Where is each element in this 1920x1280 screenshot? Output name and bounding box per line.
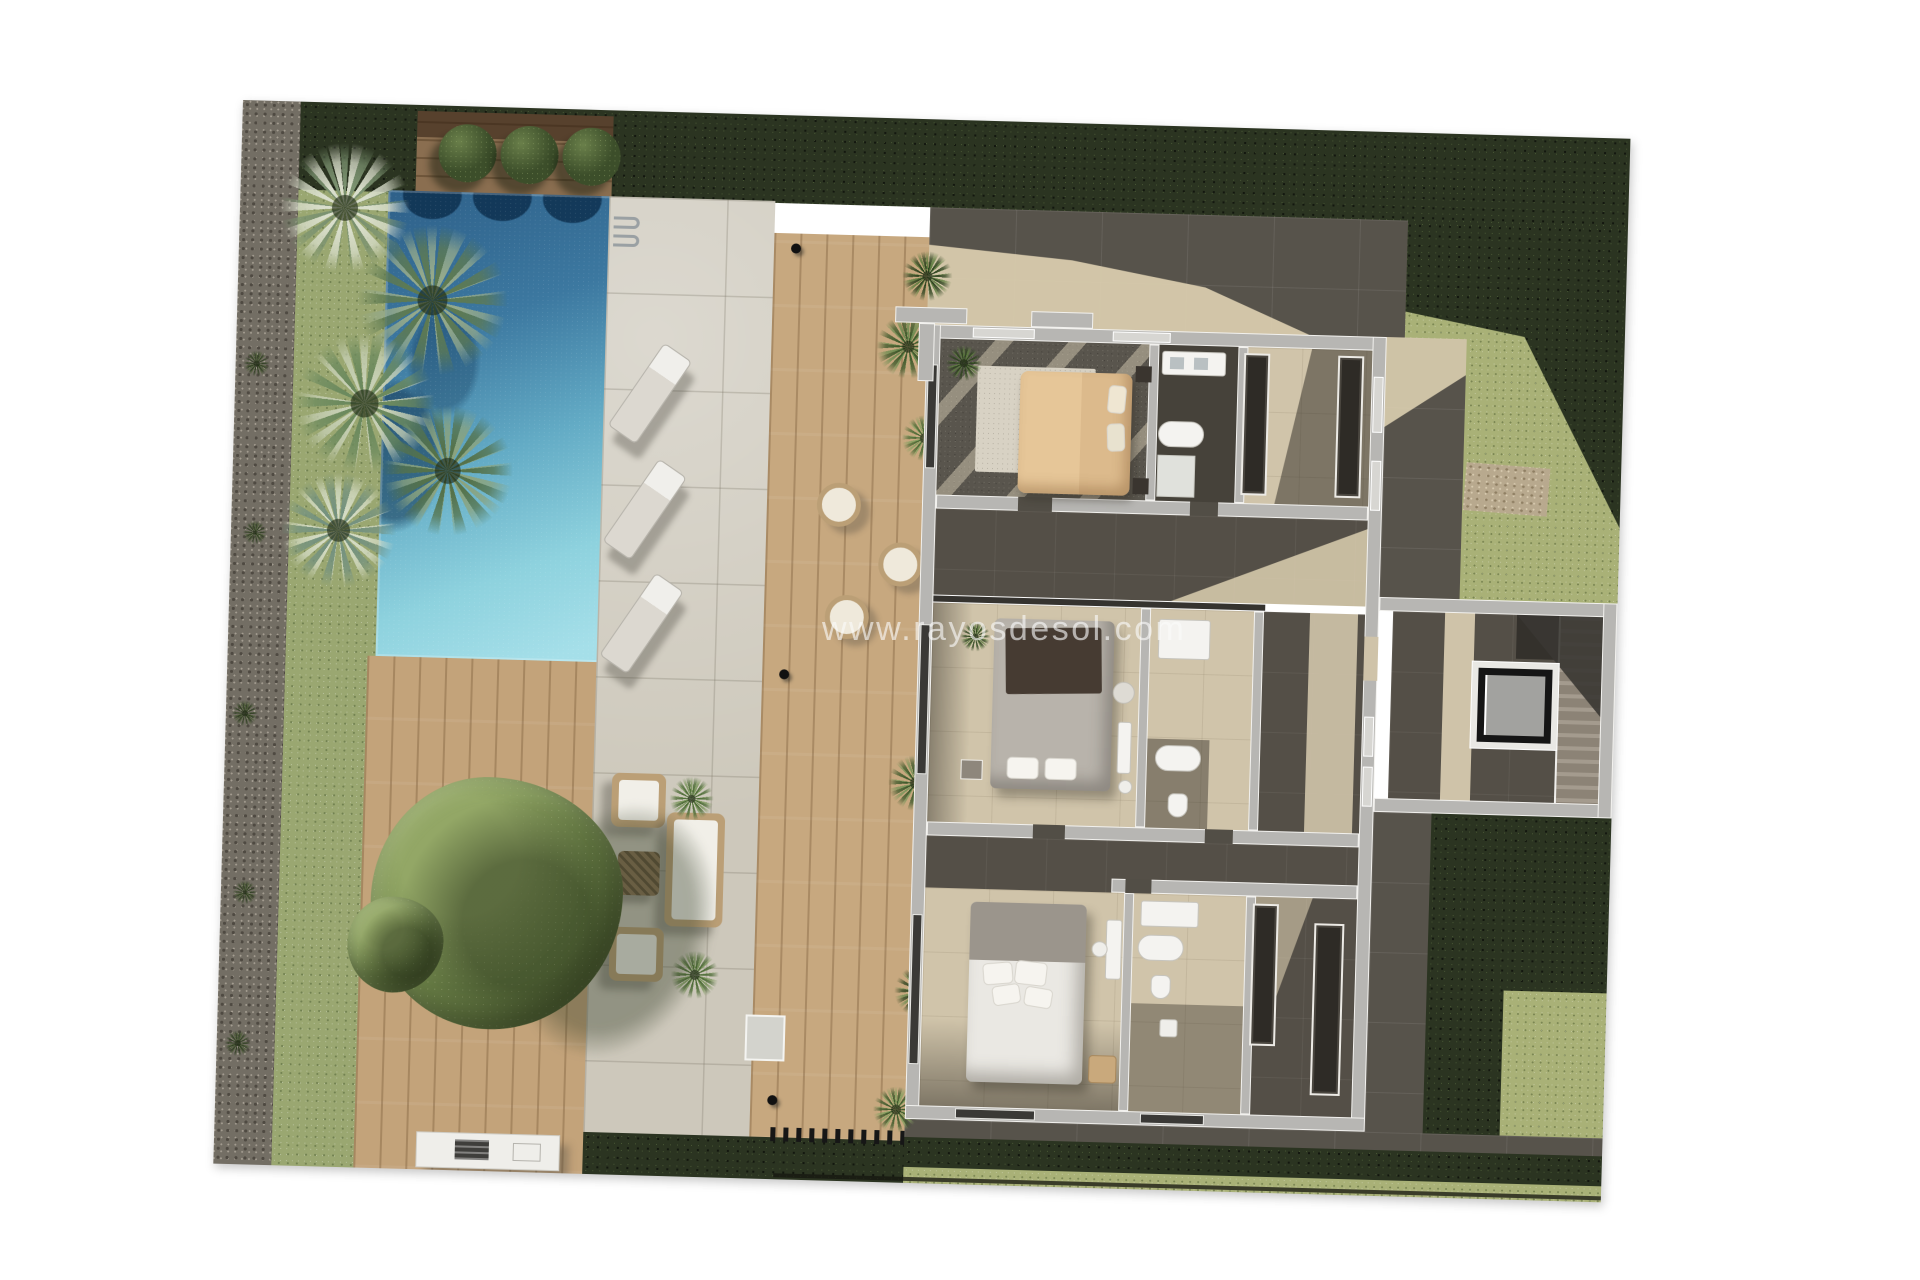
wall-stub-north — [1031, 311, 1093, 329]
bed-pillow — [991, 983, 1022, 1007]
elevator-cab — [1484, 675, 1546, 737]
wall-stub-entry-leg — [917, 323, 935, 381]
staircase-treads — [1554, 616, 1605, 804]
grass-under-patio — [582, 1132, 749, 1179]
terrace-east — [1380, 337, 1467, 599]
bathroom2-toilet — [1167, 793, 1188, 818]
wardrobe — [1334, 356, 1364, 499]
window-north — [973, 327, 1035, 339]
nightstand — [1132, 478, 1148, 494]
corridor-runner — [1304, 613, 1358, 833]
nightstand — [960, 759, 983, 780]
wardrobe — [1249, 904, 1279, 1047]
bathroom3-bathtub — [1137, 934, 1184, 961]
door-opening — [1125, 879, 1151, 894]
pool-ladder-rail — [614, 216, 640, 229]
window-south-glazing — [1140, 1113, 1204, 1125]
door-opening-to-stairwell — [1363, 637, 1378, 681]
outdoor-coffee-table — [617, 851, 660, 896]
nightstand — [1135, 366, 1151, 382]
floor-plan-render — [213, 100, 1630, 1202]
terrace-east-lower — [1365, 812, 1432, 1133]
elevator-frame — [1469, 661, 1559, 751]
door-opening — [1190, 502, 1218, 517]
door-opening — [1018, 497, 1052, 512]
window-east — [1362, 767, 1373, 807]
bathroom1-bathtub — [1158, 421, 1205, 448]
bathroom3-vanity — [1140, 900, 1199, 928]
bbq-sink — [512, 1143, 540, 1162]
nightstand-rattan — [1088, 1055, 1117, 1084]
window-north — [1113, 331, 1171, 343]
bathroom3-shadow — [1118, 1003, 1243, 1114]
bathroom1-basin — [1194, 358, 1208, 370]
bed-pillow — [982, 961, 1014, 985]
bathroom3-toilet — [1150, 975, 1171, 1000]
wardrobe — [1310, 923, 1345, 1096]
outdoor-armchair — [609, 927, 664, 982]
vanity-desk — [1117, 722, 1132, 774]
bed-pillow — [1044, 758, 1077, 781]
lawn-east-lower-patch — [1500, 991, 1607, 1139]
corridor-floor — [1248, 611, 1365, 833]
outdoor-sofa — [664, 812, 725, 928]
bbq-counter — [415, 1131, 560, 1171]
window-east — [1370, 461, 1381, 511]
planter-box — [415, 111, 613, 200]
bathroom1-shower — [1156, 455, 1195, 498]
watermark-text: www.rayosdesol.com — [822, 612, 1186, 646]
pool-ladder-rail — [613, 234, 639, 247]
gallery-sun-wedge — [933, 509, 1367, 607]
pebble-path — [1463, 462, 1551, 517]
bed-blanket-gray — [969, 902, 1087, 963]
bathroom2-bathtub — [1155, 745, 1202, 772]
bed-pillow — [1107, 385, 1128, 415]
round-bush — [500, 125, 560, 185]
bathroom3-side-table — [1159, 1019, 1177, 1037]
outdoor-armchair — [611, 773, 666, 828]
gallery-floor — [933, 509, 1367, 607]
bed-pillow — [1006, 757, 1039, 780]
house — [905, 324, 1387, 1132]
round-bush — [438, 123, 498, 183]
bed-pillow — [1107, 423, 1126, 451]
terrace-north — [927, 207, 1408, 337]
outdoor-shower-tray — [744, 1014, 785, 1061]
wall-stub-entry — [895, 306, 967, 324]
stone-patio — [583, 196, 775, 1140]
window-east — [1363, 717, 1374, 757]
bathroom1-basin — [1170, 357, 1184, 369]
door-opening — [1033, 824, 1065, 839]
wardrobe — [1240, 353, 1270, 496]
bed-pillow — [1014, 960, 1049, 988]
page-background: www.rayosdesol.com — [0, 0, 1920, 1280]
bbq-grill — [455, 1139, 490, 1160]
window-east — [1372, 377, 1384, 433]
door-opening — [1205, 829, 1233, 844]
